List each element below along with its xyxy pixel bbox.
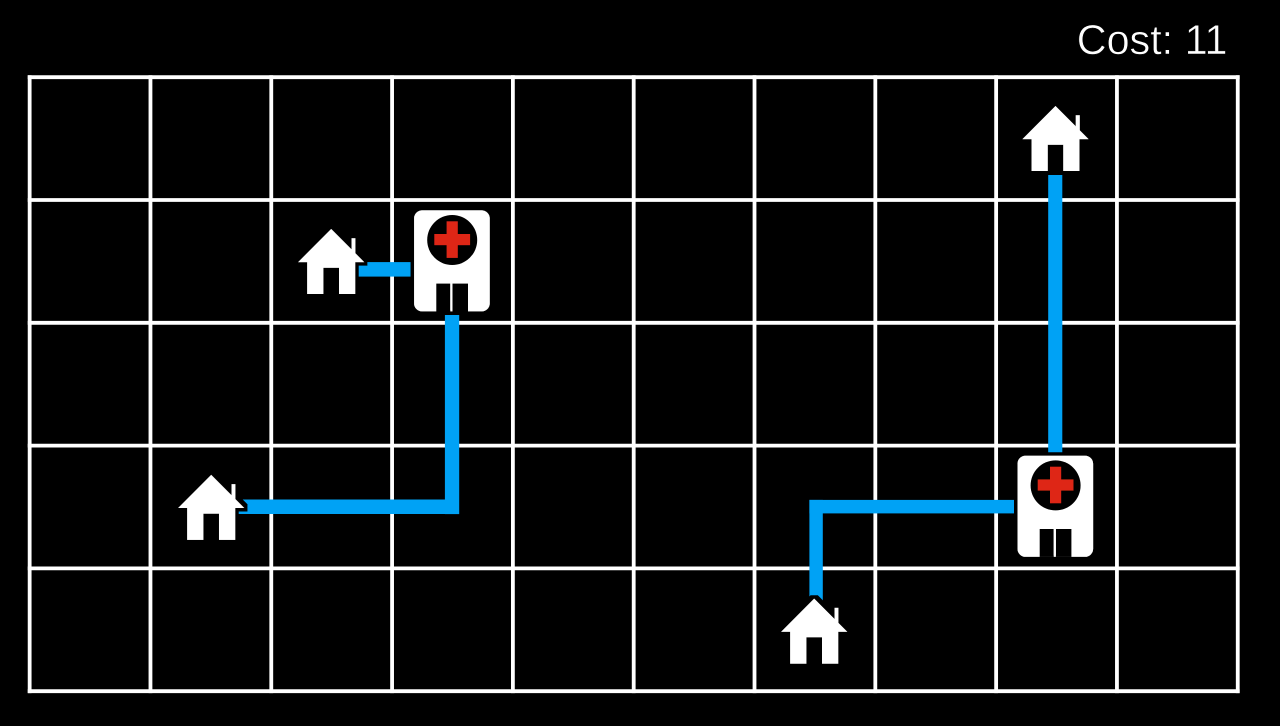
svg-text:Cost: 11: Cost: 11 (1077, 17, 1228, 63)
